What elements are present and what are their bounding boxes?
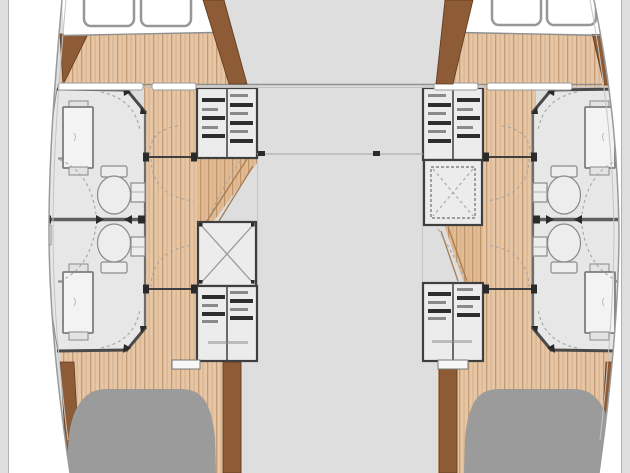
drawer-bar: [230, 308, 248, 311]
deck-hatch: [84, 0, 134, 26]
floor-plan-svg: Catamaran interior floor plan — forward …: [0, 0, 630, 473]
drawer-bar: [202, 116, 225, 120]
x-marked-locker-starboard: [424, 160, 482, 225]
drawer-bar: [230, 94, 248, 97]
drawer-bar: [457, 108, 473, 111]
floor-plan-stage: Catamaran interior floor plan — forward …: [0, 0, 630, 473]
corner-dot: [199, 280, 203, 284]
drawer-bar: [202, 98, 225, 102]
corner-dot: [251, 280, 255, 284]
deck-hatch: [547, 0, 596, 25]
locker-notch: [172, 360, 200, 369]
drawer-bar: [230, 103, 253, 107]
drawer-bar: [428, 130, 446, 133]
drawer-bar: [428, 121, 451, 125]
drawer-bar: [457, 313, 480, 317]
drawer-bar: [457, 126, 473, 129]
drawer-bar: [432, 340, 472, 343]
drawer-locker-starboard-fore: [423, 88, 483, 160]
drawer-bar: [202, 304, 218, 307]
hallway-deck-starboard: [483, 85, 536, 362]
drawer-bar: [230, 139, 253, 143]
deck-seat-port: [66, 389, 216, 473]
companionway-steps-starboard: [423, 225, 483, 283]
door-track-stop: [258, 151, 265, 156]
deck-hatch: [141, 0, 191, 26]
drawer-bar: [428, 292, 451, 296]
aft-beam-port: [223, 362, 241, 473]
door-track-stop: [373, 151, 380, 156]
drawer-locker-port-fore: [197, 88, 257, 158]
corner-dot: [251, 223, 255, 227]
drawer-bar: [202, 295, 225, 299]
hull-suite-port: [43, 87, 147, 353]
hallway-deck-port: [144, 85, 197, 362]
ledge: [487, 83, 572, 90]
drawer-bar: [457, 288, 473, 291]
ledge: [58, 83, 143, 90]
drawer-bar: [428, 309, 451, 313]
drawer-locker-port-aft: [197, 286, 257, 361]
drawer-bar: [428, 317, 446, 320]
locker-notch: [438, 360, 468, 369]
drawer-bar: [202, 134, 225, 138]
drawer-bar: [428, 94, 446, 97]
drawer-bar: [230, 316, 253, 320]
drawer-bar: [202, 126, 218, 129]
drawer-bar: [457, 305, 473, 308]
drawer-bar: [230, 291, 248, 294]
aft-beam-starboard: [439, 362, 457, 473]
drawer-bar: [202, 312, 225, 316]
drawer-locker-starboard-aft: [423, 283, 483, 361]
companionway-steps-port: [197, 158, 257, 222]
drawer-bar: [428, 112, 446, 115]
bow-deck-starboard: [451, 32, 616, 87]
drawer-bar: [202, 320, 218, 323]
drawer-bar: [457, 134, 480, 138]
deck-seat-starboard: [464, 389, 614, 473]
drawer-bar: [457, 98, 480, 102]
drawer-bar: [428, 301, 446, 304]
x-marked-locker-port: [198, 222, 256, 286]
drawer-bar: [428, 139, 451, 143]
ledge: [152, 83, 196, 90]
drawer-bar: [457, 296, 480, 300]
drawer-bar: [230, 112, 248, 115]
canvas-margin-left: [0, 0, 8, 473]
drawer-bar: [230, 121, 253, 125]
deck-hatch: [492, 0, 541, 25]
drawer-bar: [208, 341, 248, 344]
drawer-bar: [230, 130, 248, 133]
corner-dot: [199, 223, 203, 227]
canvas-margin-right: [622, 0, 630, 473]
drawer-bar: [457, 116, 480, 120]
drawer-bar: [428, 103, 451, 107]
companionway-starboard: [423, 88, 483, 369]
drawer-bar: [230, 299, 253, 303]
drawer-bar: [202, 108, 218, 111]
